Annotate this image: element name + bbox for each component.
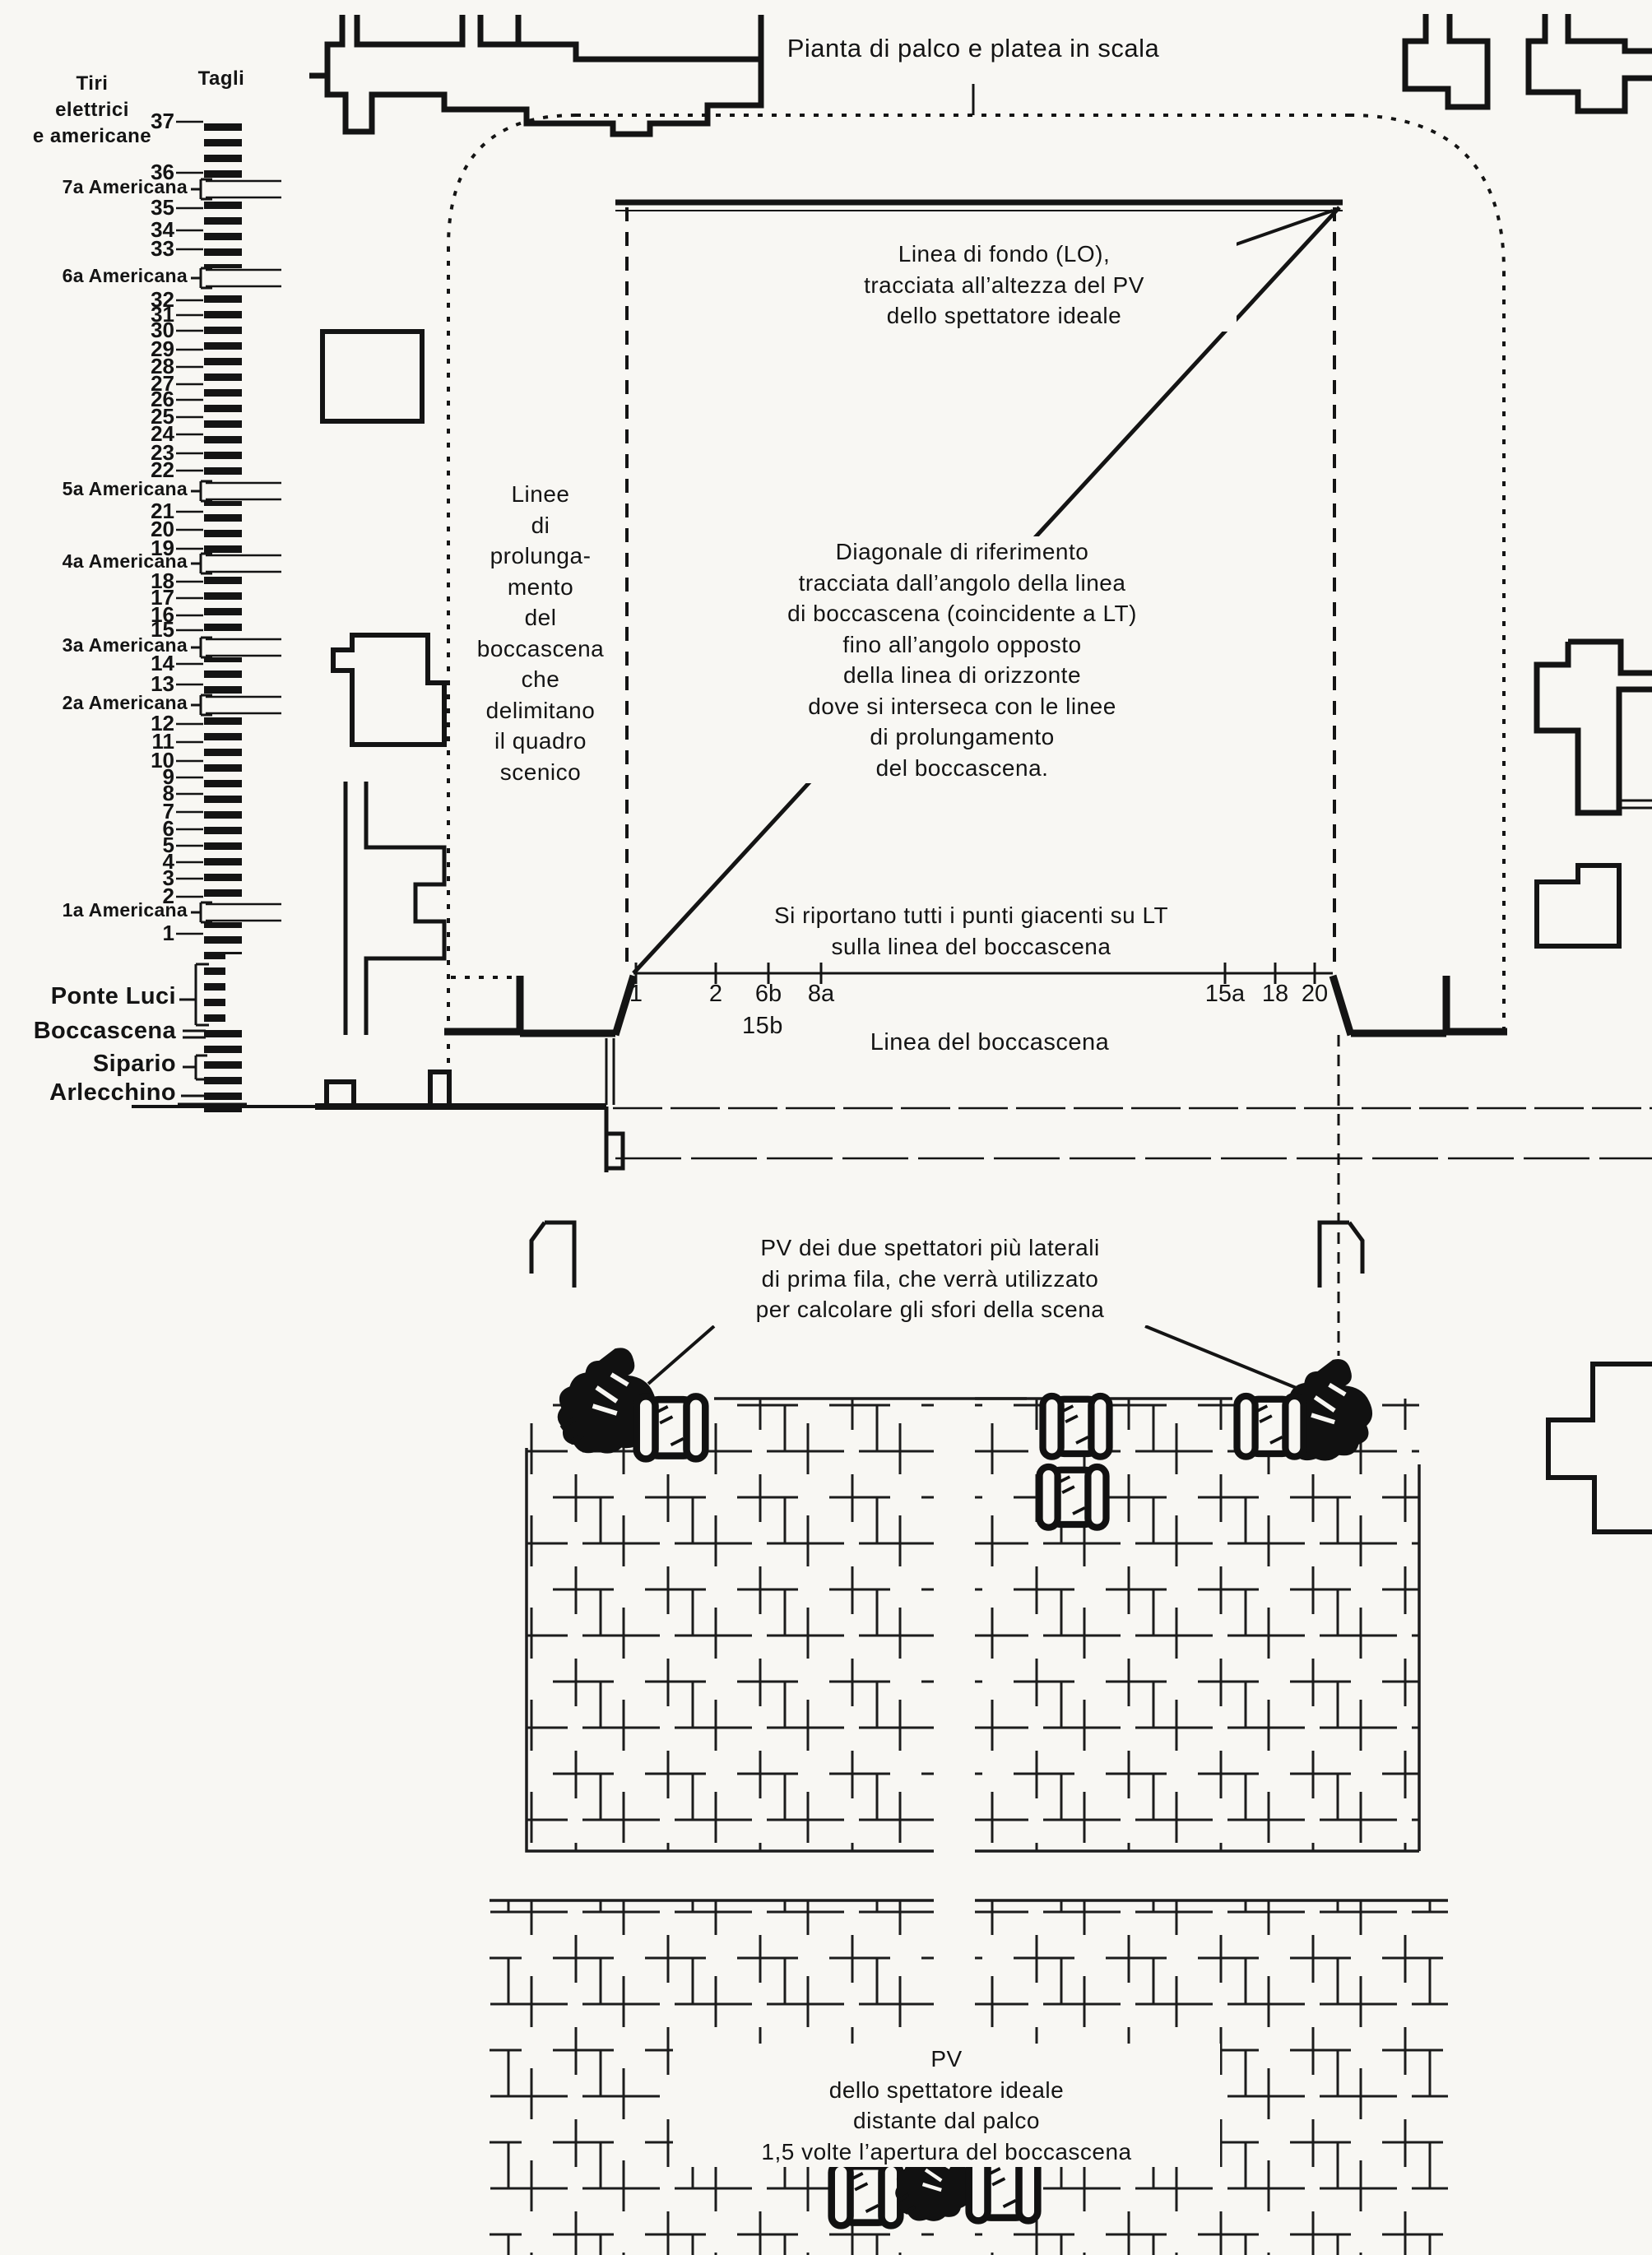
fly-row-system: Sipario: [0, 1051, 176, 1078]
note-ideal-pv: PV dello spettatore ideale distante dal …: [673, 2044, 1220, 2167]
note-linea-di-fondo: Linea di fondo (LO), tracciata all’altez…: [772, 239, 1237, 332]
note-riporto-lt: Si riportano tutti i punti giacenti su L…: [681, 900, 1261, 962]
stage-plan-drawing: [0, 0, 1652, 2255]
fly-row-system: Boccascena: [0, 1018, 176, 1045]
note-lateral-pv: PV dei due spettatori più laterali di pr…: [681, 1232, 1179, 1325]
fly-row-americana: 5a Americana: [0, 478, 188, 500]
fly-ladder: [176, 122, 281, 1112]
lt-tick-label: 2: [687, 981, 745, 1008]
fly-row-system: Ponte Luci: [0, 983, 176, 1010]
fly-row-system: Arlecchino: [0, 1079, 176, 1107]
lt-tick-label: 20: [1286, 981, 1343, 1008]
lt-tick-label: 6b: [740, 981, 797, 1008]
lt-tick-label: 1: [607, 981, 665, 1008]
lt-tick-label: 8a: [792, 981, 850, 1008]
page-title: Pianta di palco e platea in scala: [706, 31, 1241, 66]
fly-row-tick: 33: [0, 236, 174, 262]
fly-row-americana: 6a Americana: [0, 265, 188, 287]
fly-row-tick: 37: [0, 109, 174, 134]
fly-row-americana: 1a Americana: [0, 899, 188, 921]
note-linee-prolungamento: Linee di prolunga- mento del boccascena …: [462, 479, 619, 787]
fly-row-tick: 1: [0, 921, 174, 946]
label-linea-boccascena: Linea del boccascena: [813, 1027, 1167, 1059]
note-diagonale: Diagonale di riferimento tracciata dall’…: [701, 536, 1223, 783]
stage-plan: Pianta di palco e platea in scala Tiri e…: [0, 0, 1652, 2255]
lt-tick-label: 15a: [1196, 981, 1254, 1008]
label-15b: 15b: [734, 1010, 791, 1042]
fly-header-right: Tagli: [184, 66, 258, 92]
